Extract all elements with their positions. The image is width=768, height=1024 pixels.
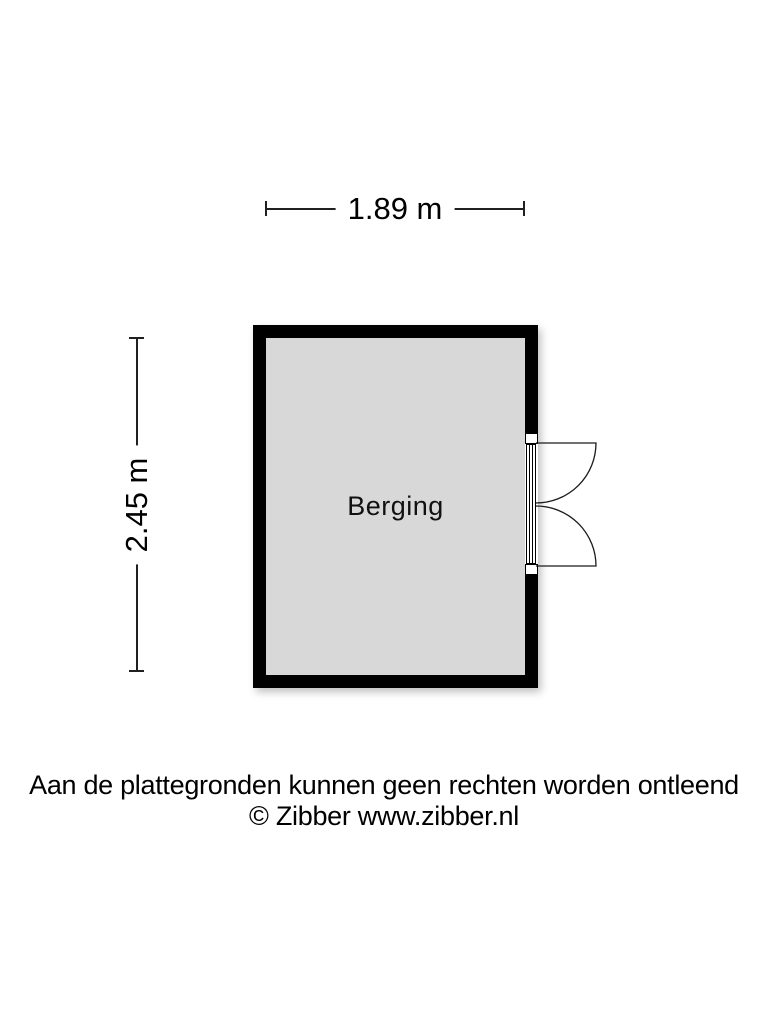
copyright-text: © Zibber www.zibber.nl (0, 801, 768, 832)
dimension-tick-right (523, 201, 525, 216)
room-berging: Berging (253, 325, 538, 688)
room-label: Berging (347, 491, 444, 522)
dimension-tick-left (265, 201, 267, 216)
door-swing-icon (525, 430, 605, 580)
floorplan-canvas: 1.89 m 2.45 m Berging Aan de plattegrond… (0, 0, 768, 1024)
width-dimension-label: 1.89 m (336, 192, 455, 226)
disclaimer-text: Aan de plattegronden kunnen geen rechten… (0, 770, 768, 801)
dimension-tick-top (129, 337, 144, 339)
height-dimension: 2.45 m (125, 338, 149, 671)
dimension-tick-bottom (129, 670, 144, 672)
footer: Aan de plattegronden kunnen geen rechten… (0, 770, 768, 832)
height-dimension-label: 2.45 m (120, 445, 154, 564)
width-dimension: 1.89 m (266, 197, 524, 221)
